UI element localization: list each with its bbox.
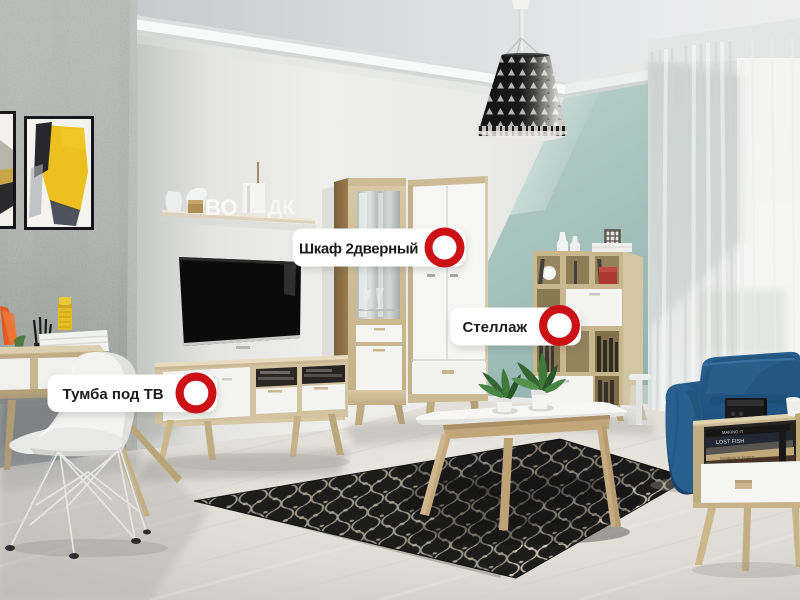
svg-text:Шкаф 2дверный: Шкаф 2дверный <box>299 241 418 258</box>
svg-text:Стеллаж: Стеллаж <box>463 319 528 336</box>
svg-text:ДК: ДК <box>268 197 295 219</box>
svg-text:ВО: ВО <box>205 195 237 220</box>
svg-text:Тумба под ТВ: Тумба под ТВ <box>63 386 164 403</box>
